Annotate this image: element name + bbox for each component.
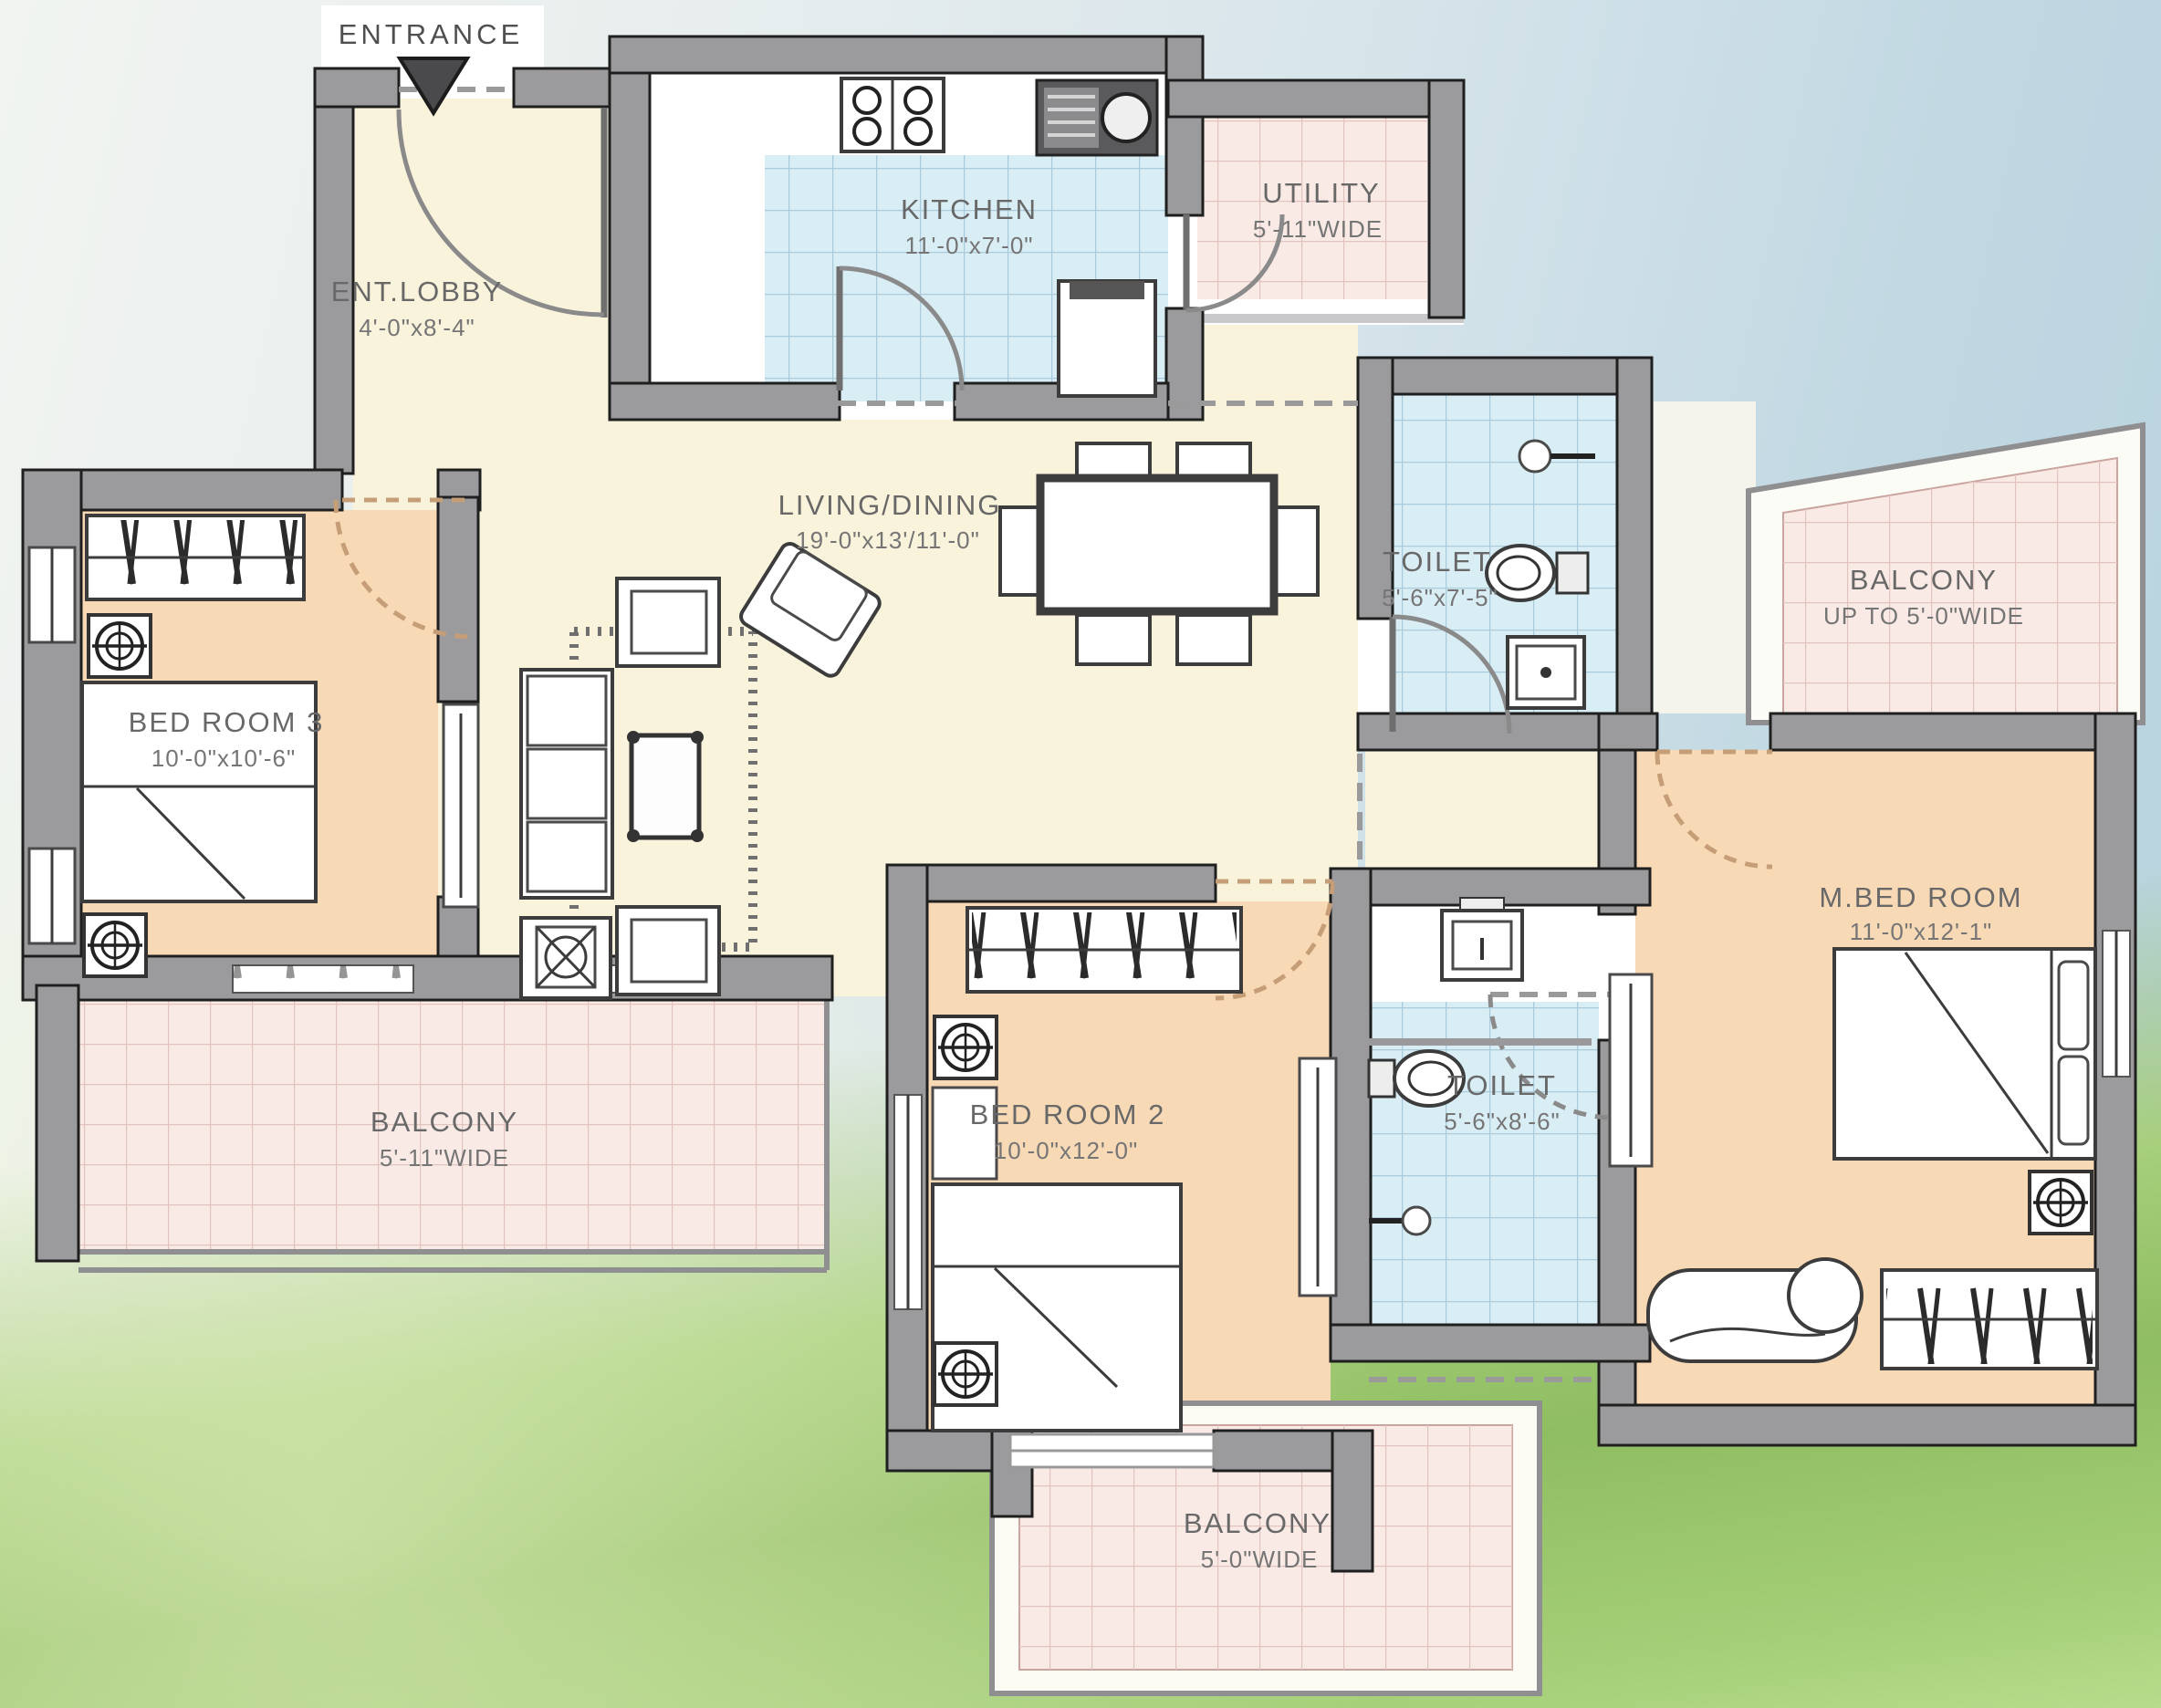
room-label-living-dining: LIVING/DINING bbox=[778, 489, 1002, 521]
utility-bottom-line bbox=[1168, 314, 1464, 323]
room-dims-kitchen: 11'-0"x7'-0" bbox=[904, 232, 1033, 259]
tap-icon bbox=[1519, 441, 1550, 472]
service-ledge bbox=[1654, 401, 1756, 713]
dining-chair bbox=[1077, 615, 1150, 664]
bed bbox=[1834, 949, 2095, 1159]
pillow bbox=[2059, 962, 2088, 1049]
dining-chair bbox=[1274, 507, 1318, 595]
room-dims-master-bedroom: 11'-0"x12'-1" bbox=[1850, 918, 1993, 945]
room-dims-living-dining: 19'-0"x13'/11'-0" bbox=[796, 526, 980, 554]
round-cushion bbox=[1789, 1259, 1862, 1332]
room-dims-balcony-right: UP TO 5'-0"WIDE bbox=[1823, 602, 2024, 630]
room-dims-toilet2: 5'-6"x8'-6" bbox=[1444, 1108, 1561, 1135]
room-label-utility: UTILITY bbox=[1262, 177, 1380, 209]
toilet2-tiles bbox=[1367, 1002, 1599, 1327]
room-dims-balcony-bottom: 5'-0"WIDE bbox=[1201, 1546, 1319, 1573]
room-dims-toilet1: 5'-6"x7'-5" bbox=[1382, 584, 1498, 611]
wc-tank bbox=[1557, 553, 1588, 593]
room-label-balcony-right: BALCONY bbox=[1850, 564, 1998, 596]
room-label-balcony-bottom: BALCONY bbox=[1184, 1507, 1331, 1539]
room-label-bedroom2: BED ROOM 2 bbox=[970, 1099, 1166, 1130]
room-dims-bedroom2: 10'-0"x12'-0" bbox=[994, 1137, 1138, 1164]
room-dims-utility: 5'-11"WIDE bbox=[1253, 215, 1383, 243]
ceiling-fan-icon bbox=[89, 615, 151, 677]
ceiling-fan-icon bbox=[934, 1343, 997, 1405]
ceiling-fan-icon bbox=[934, 1016, 997, 1078]
room-label-bedroom3: BED ROOM 3 bbox=[129, 706, 325, 738]
room-label-toilet2: TOILET bbox=[1447, 1069, 1557, 1101]
dining-chair bbox=[1177, 615, 1250, 664]
ceiling-fan-icon bbox=[2030, 1172, 2092, 1234]
dining-table bbox=[1040, 478, 1274, 611]
entrance-label: ENTRANCE bbox=[339, 18, 524, 50]
room-dims-bedroom3: 10'-0"x10'-6" bbox=[151, 745, 296, 772]
room-label-ent-lobby: ENT.LOBBY bbox=[331, 276, 504, 307]
corridor-floor bbox=[1365, 750, 1599, 869]
room-label-balcony-left: BALCONY bbox=[371, 1106, 518, 1138]
pillow bbox=[2059, 1057, 2088, 1144]
sink-basin bbox=[1102, 94, 1150, 141]
ceiling-fan-icon bbox=[84, 914, 146, 976]
room-dims-ent-lobby: 4'-0"x8'-4" bbox=[359, 314, 475, 341]
shower-icon bbox=[1403, 1207, 1430, 1234]
room-dims-balcony-left: 5'-11"WIDE bbox=[380, 1144, 509, 1172]
room-label-master-bedroom: M.BED ROOM bbox=[1819, 881, 2022, 913]
floor-plan-page: ENTRANCE ENT.LOBBY 4'-0"x8'-4" KITCHEN 1… bbox=[0, 0, 2161, 1708]
coffee-table bbox=[632, 735, 699, 838]
floor-plan-svg: ENTRANCE ENT.LOBBY 4'-0"x8'-4" KITCHEN 1… bbox=[0, 0, 2161, 1708]
room-label-toilet1: TOILET bbox=[1383, 546, 1492, 578]
room-label-kitchen: KITCHEN bbox=[901, 193, 1038, 225]
wc-tank bbox=[1369, 1060, 1394, 1097]
